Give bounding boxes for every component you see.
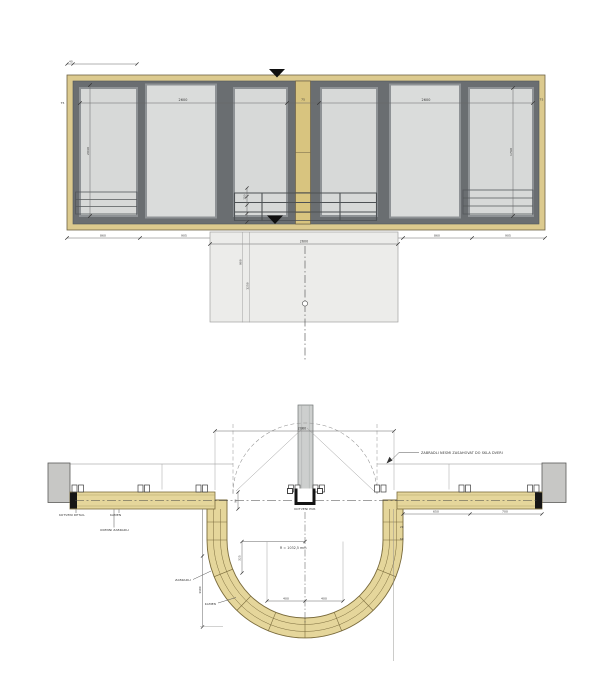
dim-radius-drop: 325 [238, 555, 242, 561]
dim-frame-right: 75 [539, 98, 543, 102]
slab-dim-v1: 900 [238, 259, 242, 265]
railing-note: ZABRADLI NESMI ZASAHOVAT DO SKLA DVERI [387, 451, 503, 464]
door-panel-left [146, 85, 216, 218]
plan-view: 2060 ZABRADLI NESMI ZASAHOVAT DO SKLA DV… [48, 405, 566, 661]
dim-depth: 1180 [198, 586, 202, 594]
dim-opening: 2060 [298, 426, 307, 430]
dim-post-width: 75 [301, 98, 305, 102]
chain-dim: 860 [434, 233, 440, 237]
label-stone: KAMEN [110, 513, 121, 517]
dim-rail: 150 [243, 194, 247, 200]
slab-width-dim: 2600 [300, 239, 309, 243]
right-band-dim: 650 700 [401, 509, 543, 515]
elevation-view: 2600 2600 75 75 75 2040 1760 150 [61, 59, 547, 360]
dim-height-left: 2040 [86, 147, 90, 155]
slab-dim-v2: 1250 [245, 282, 249, 290]
door-panel-right [390, 85, 460, 218]
dim-height-right: 1760 [509, 148, 513, 156]
label-railing: ZABRADLI [175, 578, 191, 582]
architectural-drawing: 2600 2600 75 75 75 2040 1760 150 [0, 0, 611, 700]
masonry-jamb-left [48, 463, 70, 503]
dim-inner-right: 400 [321, 596, 327, 600]
leader-arrow-icon [387, 457, 393, 464]
label-sill-flashing: KOTVENI DETAIL [59, 513, 85, 517]
dim-right-1: 650 [433, 509, 439, 513]
dim-group-left: 2600 [178, 98, 187, 102]
dim-radius: R = 1032,5 mm [280, 546, 307, 550]
dim-group-right: 2600 [421, 98, 430, 102]
window-panel-4 [321, 88, 377, 216]
drawing-canvas: 2600 2600 75 75 75 2040 1760 150 [0, 0, 611, 700]
note-text: ZABRADLI NESMI ZASAHOVAT DO SKLA DVERI [421, 451, 503, 455]
anchor-label: KOTVENI PUR [294, 507, 315, 511]
dim-right-2: 700 [502, 509, 508, 513]
window-panel-3 [234, 88, 287, 216]
dim-frame-left: 75 [61, 101, 65, 105]
window-panel-6 [469, 88, 533, 216]
dim-center-offset: 90 [234, 499, 238, 503]
chain-dim: 905 [505, 233, 511, 237]
axis-symbol-icon [302, 301, 307, 306]
label-window-railing: OKENNI ZABRADLI [100, 528, 129, 532]
dim-top-offset: 40 [69, 59, 73, 63]
dim-lam-1: 20 [400, 525, 404, 529]
label-stone-ring: KAMEN [205, 602, 216, 606]
slab-section: 2600 900 1250 [208, 232, 400, 360]
dim-inner-left: 400 [283, 596, 289, 600]
mullion-plan-strip [298, 405, 313, 490]
chain-dim: 860 [100, 233, 106, 237]
dim-lam-2: 60 [400, 537, 404, 541]
chain-dim: 905 [181, 233, 187, 237]
masonry-jamb-right [542, 463, 566, 503]
steel-anchor: KOTVENI PUR [288, 489, 323, 511]
